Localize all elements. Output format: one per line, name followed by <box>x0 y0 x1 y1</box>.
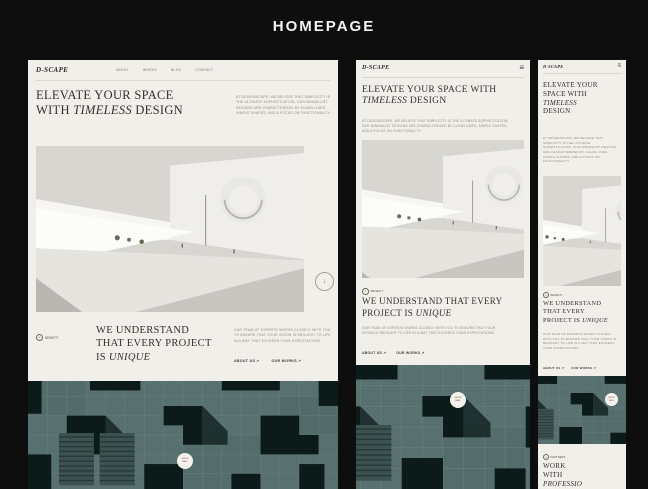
benefit-badge: + BENEFIT <box>362 288 383 295</box>
plus-circle-icon: + <box>543 454 549 460</box>
our-works-link[interactable]: OUR WORKS↗ <box>271 359 301 363</box>
benefit-headline: WE UNDERSTAND THAT EVERY PROJECT IS UNIQ… <box>362 296 514 319</box>
benefit-links: ABOUT US↗ OUR WORKS↗ <box>362 351 425 355</box>
showreel-button[interactable]: SHOWREEL <box>177 453 193 469</box>
benefit-body: OUR TEAM OF EXPERTS WORKS CLOSELY WITH Y… <box>543 332 618 351</box>
nav-item-contact[interactable]: CONTACT <box>196 68 214 72</box>
partners-badge: + PARTNERS <box>543 454 565 460</box>
page-title: HOMEPAGE <box>0 18 648 35</box>
scroll-down-button[interactable]: ↓ <box>315 272 334 291</box>
main-nav: ABOUT WORKS BLOG CONTACT <box>116 68 213 72</box>
external-arrow-icon: ↗ <box>298 359 301 363</box>
our-works-link[interactable]: OUR WORKS↗ <box>571 366 596 370</box>
benefit-badge: + BENEFIT <box>543 292 562 298</box>
mockup-canvas: HOMEPAGE D-SCAPE ABOUT WORKS BLOG CONTAC… <box>0 0 648 489</box>
external-arrow-icon: ↗ <box>421 351 424 355</box>
nav-item-blog[interactable]: BLOG <box>171 68 181 72</box>
header-divider <box>362 77 524 78</box>
header-divider <box>36 80 330 81</box>
benefit-links: ABOUT US↗ OUR WORKS↗ <box>543 366 596 370</box>
artboard-tablet: D-SCAPE ≡ ELEVATE YOUR SPACE WITH TIMELE… <box>356 60 530 489</box>
showreel-button[interactable]: SHOWREEL <box>605 393 618 406</box>
plus-circle-icon: + <box>543 292 549 298</box>
cube-wall-photo <box>538 376 626 444</box>
benefit-links: ABOUT US↗ OUR WORKS↗ <box>234 359 301 363</box>
architecture-photo <box>362 140 524 278</box>
cube-wall-image <box>28 381 338 489</box>
benefit-headline: WE UNDERSTAND THAT EVERY PROJECT IS UNIQ… <box>543 300 609 325</box>
artboard-desktop: D-SCAPE ABOUT WORKS BLOG CONTACT ELEVATE… <box>28 60 338 489</box>
logo[interactable]: D-SCAPE <box>362 65 389 71</box>
hero-intro-text: AT DESIGNSCAPE, WE BELIEVE THAT SIMPLICI… <box>236 95 331 116</box>
benefit-headline: WE UNDERSTAND THAT EVERY PROJECT IS UNIQ… <box>96 324 214 364</box>
external-arrow-icon: ↗ <box>256 359 259 363</box>
arrow-down-icon: ↓ <box>323 278 327 285</box>
cube-wall-photo <box>356 365 530 489</box>
external-arrow-icon: ↗ <box>593 366 596 370</box>
hero-headline: ELEVATE YOUR SPACE WITH TIMELESS DESIGN <box>36 88 208 118</box>
architecture-photo <box>36 146 304 312</box>
logo[interactable]: D-SCAPE <box>36 66 68 74</box>
artboard-mobile: D-SCAPE ≡ ELEVATE YOUR SPACE WITH TIMELE… <box>538 60 626 489</box>
partners-headline: WORK WITH PROFESSIO <box>543 462 581 488</box>
hero-intro-text: AT DESIGNSCAPE, WE BELIEVE THAT SIMPLICI… <box>362 119 514 134</box>
showreel-button[interactable]: SHOWREEL <box>450 392 466 408</box>
hero-intro-text: AT DESIGNSCAPE, WE BELIEVE THAT SIMPLICI… <box>543 136 618 164</box>
hero-image <box>36 146 304 312</box>
benefit-body: OUR TEAM OF EXPERTS WORKS CLOSELY WITH Y… <box>362 326 504 336</box>
menu-icon[interactable]: ≡ <box>617 63 621 69</box>
hero-headline: ELEVATE YOUR SPACE WITH TIMELESS DESIGN <box>543 81 600 116</box>
hero-image <box>362 140 524 278</box>
nav-item-about[interactable]: ABOUT <box>116 68 129 72</box>
architecture-photo <box>543 176 621 286</box>
plus-circle-icon: + <box>36 334 43 341</box>
nav-item-works[interactable]: WORKS <box>143 68 157 72</box>
cube-wall-image <box>538 376 626 444</box>
benefit-body: OUR TEAM OF EXPERTS WORKS CLOSELY WITH Y… <box>234 328 332 344</box>
benefit-badge: + BENEFIT <box>36 334 58 341</box>
header-divider <box>543 73 621 74</box>
plus-circle-icon: + <box>362 288 369 295</box>
hero-headline: ELEVATE YOUR SPACE WITH TIMELESS DESIGN <box>362 85 522 108</box>
external-arrow-icon: ↗ <box>562 366 565 370</box>
about-us-link[interactable]: ABOUT US↗ <box>234 359 259 363</box>
cube-wall-image <box>356 365 530 489</box>
about-us-link[interactable]: ABOUT US↗ <box>543 366 564 370</box>
cube-wall-photo <box>28 381 338 489</box>
hero-image <box>543 176 621 286</box>
external-arrow-icon: ↗ <box>383 351 386 355</box>
about-us-link[interactable]: ABOUT US↗ <box>362 351 386 355</box>
our-works-link[interactable]: OUR WORKS↗ <box>396 351 424 355</box>
logo[interactable]: D-SCAPE <box>543 64 563 69</box>
menu-icon[interactable]: ≡ <box>519 64 524 72</box>
